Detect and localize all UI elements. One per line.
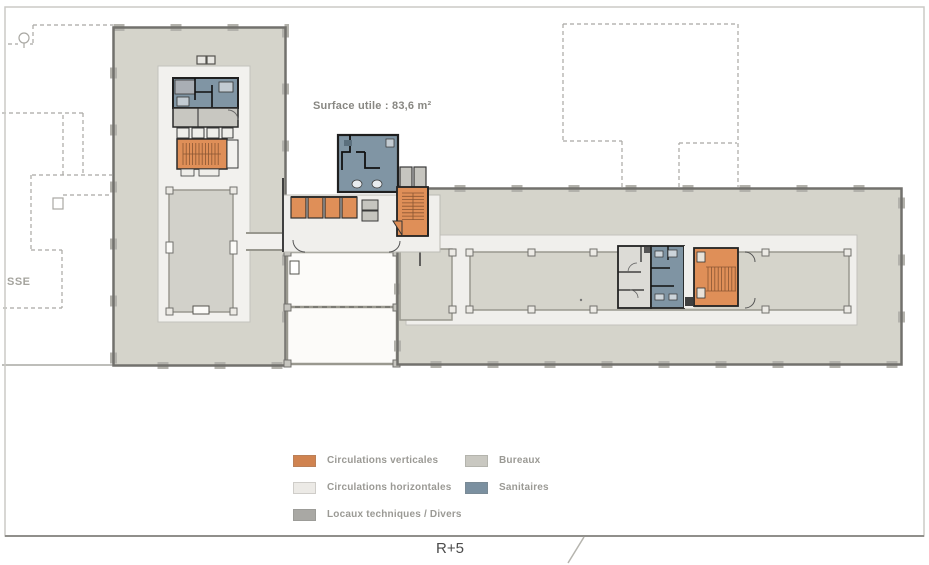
tower-sanitaires-block: [173, 78, 238, 108]
legend-item-bureaux: Bureaux: [465, 452, 549, 469]
color-swatch-locaux-techniques: [293, 509, 316, 521]
link-sanitaires-block: [338, 135, 398, 192]
legend-label: Locaux techniques / Divers: [327, 509, 462, 520]
legend-column-2: Bureaux Sanitaires: [465, 452, 549, 506]
legend-label: Circulations verticales: [327, 455, 438, 466]
terrace-label: SSE: [7, 276, 31, 288]
legend-label: Sanitaires: [499, 482, 549, 493]
color-swatch-sanitaires: [465, 482, 488, 494]
wing-sanitaires-block: [651, 246, 684, 308]
color-swatch-circulations-horizontales: [293, 482, 316, 494]
wing-technical-room: [618, 246, 651, 308]
link-stair-block: [393, 187, 428, 236]
tower-courtyard-room: [166, 187, 237, 315]
atrium-void: [284, 249, 400, 367]
legend-item-sanitaires: Sanitaires: [465, 479, 549, 496]
link-block: [283, 135, 440, 252]
legend-item-circulations-horizontales: Circulations horizontales: [293, 479, 462, 496]
legend-column-1: Circulations verticales Circulations hor…: [293, 452, 462, 533]
legend-label: Bureaux: [499, 455, 540, 466]
caption-slash: [568, 537, 584, 563]
color-swatch-bureaux: [465, 455, 488, 467]
legend-label: Circulations horizontales: [327, 482, 451, 493]
neighbor-outline-top-right: [563, 24, 738, 187]
surface-area-label: Surface utile : 83,6 m²: [313, 100, 431, 112]
floor-level-caption: R+5: [400, 540, 500, 557]
floor-plan-sheet: Surface utile : 83,6 m² SSE R+5 Circulat…: [0, 0, 929, 565]
tower-technical-room: [173, 108, 238, 127]
wing-stair-block: [694, 248, 738, 306]
color-swatch-circulations-verticales: [293, 455, 316, 467]
legend-item-locaux-techniques: Locaux techniques / Divers: [293, 506, 462, 523]
neighbor-outline-top-left: [8, 25, 113, 48]
legend-item-circulations-verticales: Circulations verticales: [293, 452, 462, 469]
wing-block: [398, 189, 902, 365]
tower-block: [114, 28, 286, 366]
